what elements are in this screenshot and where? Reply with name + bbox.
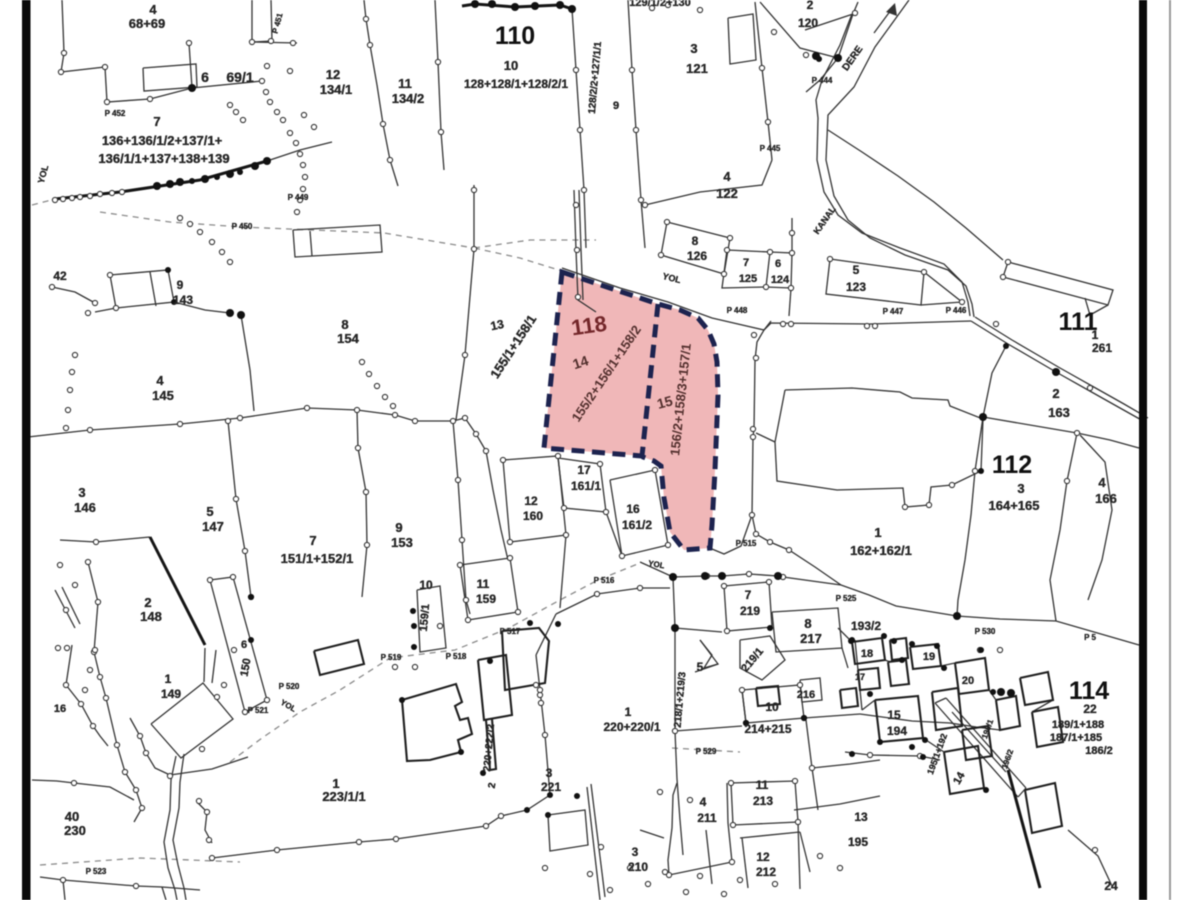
svg-text:114: 114 xyxy=(1069,677,1109,705)
svg-text:12: 12 xyxy=(524,494,538,508)
svg-text:3: 3 xyxy=(632,845,639,859)
svg-text:9: 9 xyxy=(613,100,619,112)
svg-text:212: 212 xyxy=(756,865,776,879)
svg-text:6: 6 xyxy=(775,258,781,270)
svg-text:160: 160 xyxy=(523,509,543,523)
svg-text:12: 12 xyxy=(326,67,340,82)
svg-text:P 529: P 529 xyxy=(696,747,717,756)
svg-text:17: 17 xyxy=(855,672,865,682)
svg-text:118: 118 xyxy=(570,311,609,341)
svg-text:4: 4 xyxy=(1098,475,1106,490)
svg-text:P 515: P 515 xyxy=(736,539,757,548)
svg-text:6: 6 xyxy=(241,639,247,651)
svg-text:3: 3 xyxy=(546,766,553,780)
svg-text:162+162/1: 162+162/1 xyxy=(850,543,912,558)
svg-text:P 5: P 5 xyxy=(1084,633,1096,642)
svg-text:149: 149 xyxy=(161,687,181,701)
svg-text:163: 163 xyxy=(1048,405,1070,420)
svg-text:7: 7 xyxy=(743,257,749,269)
svg-text:193/2: 193/2 xyxy=(851,619,881,633)
svg-text:69/1: 69/1 xyxy=(226,69,253,85)
svg-text:219: 219 xyxy=(740,604,760,618)
svg-text:P 520: P 520 xyxy=(279,682,300,691)
svg-text:146: 146 xyxy=(74,500,96,515)
svg-text:17: 17 xyxy=(577,463,591,477)
svg-text:P 452: P 452 xyxy=(105,109,126,118)
svg-text:261: 261 xyxy=(1092,341,1112,355)
svg-text:P 450: P 450 xyxy=(232,222,253,231)
svg-text:128+128/1+128/2/1: 128+128/1+128/2/1 xyxy=(464,77,568,91)
svg-text:230: 230 xyxy=(64,823,86,838)
svg-text:214+215: 214+215 xyxy=(744,722,791,736)
svg-text:68+69: 68+69 xyxy=(129,16,166,31)
svg-text:159: 159 xyxy=(476,592,496,606)
svg-text:P 446: P 446 xyxy=(946,306,967,315)
svg-text:P 523: P 523 xyxy=(86,867,107,876)
svg-text:P 445: P 445 xyxy=(760,144,781,153)
svg-text:166: 166 xyxy=(1095,491,1117,506)
svg-text:123: 123 xyxy=(846,280,866,294)
svg-text:148: 148 xyxy=(140,609,162,624)
svg-text:11: 11 xyxy=(756,778,769,792)
svg-text:216: 216 xyxy=(797,689,815,701)
svg-text:187/1+185: 187/1+185 xyxy=(1050,732,1102,744)
svg-text:7: 7 xyxy=(153,114,160,129)
svg-text:P 448: P 448 xyxy=(727,306,748,315)
svg-text:194: 194 xyxy=(887,724,907,738)
svg-text:P 444: P 444 xyxy=(812,76,833,85)
svg-text:P 521: P 521 xyxy=(248,706,269,715)
svg-text:1: 1 xyxy=(625,705,632,719)
svg-text:9: 9 xyxy=(177,278,184,292)
svg-text:220+220/1: 220+220/1 xyxy=(603,720,660,734)
svg-text:8: 8 xyxy=(804,616,811,631)
svg-text:145: 145 xyxy=(152,388,174,403)
svg-text:124: 124 xyxy=(771,274,790,286)
svg-text:15: 15 xyxy=(887,708,901,722)
svg-text:126: 126 xyxy=(687,249,707,263)
svg-text:2: 2 xyxy=(807,0,814,12)
svg-text:121: 121 xyxy=(686,61,708,76)
svg-text:P 530: P 530 xyxy=(975,627,996,636)
svg-text:4: 4 xyxy=(156,373,164,388)
svg-text:213: 213 xyxy=(753,794,773,808)
svg-text:7: 7 xyxy=(745,588,752,602)
svg-text:P 449: P 449 xyxy=(288,193,309,202)
svg-text:8: 8 xyxy=(341,317,348,332)
svg-text:125: 125 xyxy=(739,273,757,285)
svg-text:10: 10 xyxy=(504,58,518,73)
svg-text:3: 3 xyxy=(1017,481,1024,496)
svg-text:16: 16 xyxy=(54,703,66,715)
svg-text:147: 147 xyxy=(202,519,224,534)
svg-text:221: 221 xyxy=(541,780,561,794)
svg-text:161/1: 161/1 xyxy=(571,479,601,493)
svg-text:129/1/2+130: 129/1/2+130 xyxy=(629,0,690,9)
svg-text:211: 211 xyxy=(697,811,717,825)
svg-text:111: 111 xyxy=(1059,308,1098,336)
svg-text:4: 4 xyxy=(723,169,731,184)
svg-text:40: 40 xyxy=(65,809,79,824)
svg-text:42: 42 xyxy=(53,269,67,283)
svg-text:2: 2 xyxy=(144,595,151,610)
svg-text:10: 10 xyxy=(419,578,433,592)
svg-text:4: 4 xyxy=(700,795,707,809)
svg-text:164+165: 164+165 xyxy=(989,498,1040,513)
svg-text:143: 143 xyxy=(173,293,193,307)
svg-text:1: 1 xyxy=(165,672,172,686)
svg-text:1: 1 xyxy=(874,525,881,540)
svg-text:134/2: 134/2 xyxy=(392,91,425,106)
svg-text:12: 12 xyxy=(756,850,770,864)
svg-text:6: 6 xyxy=(201,69,209,85)
svg-text:P 517: P 517 xyxy=(500,627,521,636)
svg-text:112: 112 xyxy=(992,451,1032,479)
svg-text:159/1: 159/1 xyxy=(418,604,432,632)
svg-text:210: 210 xyxy=(628,860,648,874)
svg-text:11: 11 xyxy=(477,577,490,591)
svg-text:24: 24 xyxy=(1104,879,1118,893)
svg-text:5: 5 xyxy=(697,660,704,674)
svg-text:3: 3 xyxy=(78,485,85,500)
svg-text:20: 20 xyxy=(962,675,974,687)
svg-text:9: 9 xyxy=(395,520,402,535)
svg-text:P 447: P 447 xyxy=(883,307,904,316)
svg-text:3: 3 xyxy=(690,41,697,56)
svg-text:8: 8 xyxy=(692,234,699,248)
svg-text:P 518: P 518 xyxy=(446,652,467,661)
svg-text:P 525: P 525 xyxy=(836,594,857,603)
svg-text:7: 7 xyxy=(309,533,316,548)
svg-text:154: 154 xyxy=(337,331,359,346)
svg-text:189/1+188: 189/1+188 xyxy=(1052,719,1104,731)
svg-text:110: 110 xyxy=(495,22,535,50)
svg-text:153: 153 xyxy=(391,535,413,550)
svg-text:19: 19 xyxy=(923,651,935,663)
svg-text:151/1+152/1: 151/1+152/1 xyxy=(281,551,354,566)
svg-text:217: 217 xyxy=(800,631,822,646)
svg-text:120: 120 xyxy=(798,16,818,30)
svg-text:186/2: 186/2 xyxy=(1085,745,1113,757)
svg-text:5: 5 xyxy=(853,263,860,277)
svg-text:2: 2 xyxy=(1052,386,1059,401)
svg-text:5: 5 xyxy=(206,504,213,519)
svg-text:P 516: P 516 xyxy=(594,576,615,585)
svg-text:18: 18 xyxy=(861,648,873,660)
svg-text:134/1: 134/1 xyxy=(320,82,353,97)
svg-text:4: 4 xyxy=(149,2,157,17)
svg-text:P 519: P 519 xyxy=(381,653,402,662)
svg-text:136+136/1/2+137/1+: 136+136/1/2+137/1+ xyxy=(102,133,223,148)
svg-text:16: 16 xyxy=(626,502,640,516)
svg-text:223/1/1: 223/1/1 xyxy=(322,789,365,804)
svg-text:10: 10 xyxy=(765,700,779,714)
svg-text:122: 122 xyxy=(716,186,738,201)
svg-text:195: 195 xyxy=(848,835,868,849)
svg-text:161/2: 161/2 xyxy=(622,518,652,532)
svg-text:136/1/1+137+138+139: 136/1/1+137+138+139 xyxy=(98,151,229,166)
svg-text:13: 13 xyxy=(854,810,868,824)
svg-text:11: 11 xyxy=(398,76,412,91)
